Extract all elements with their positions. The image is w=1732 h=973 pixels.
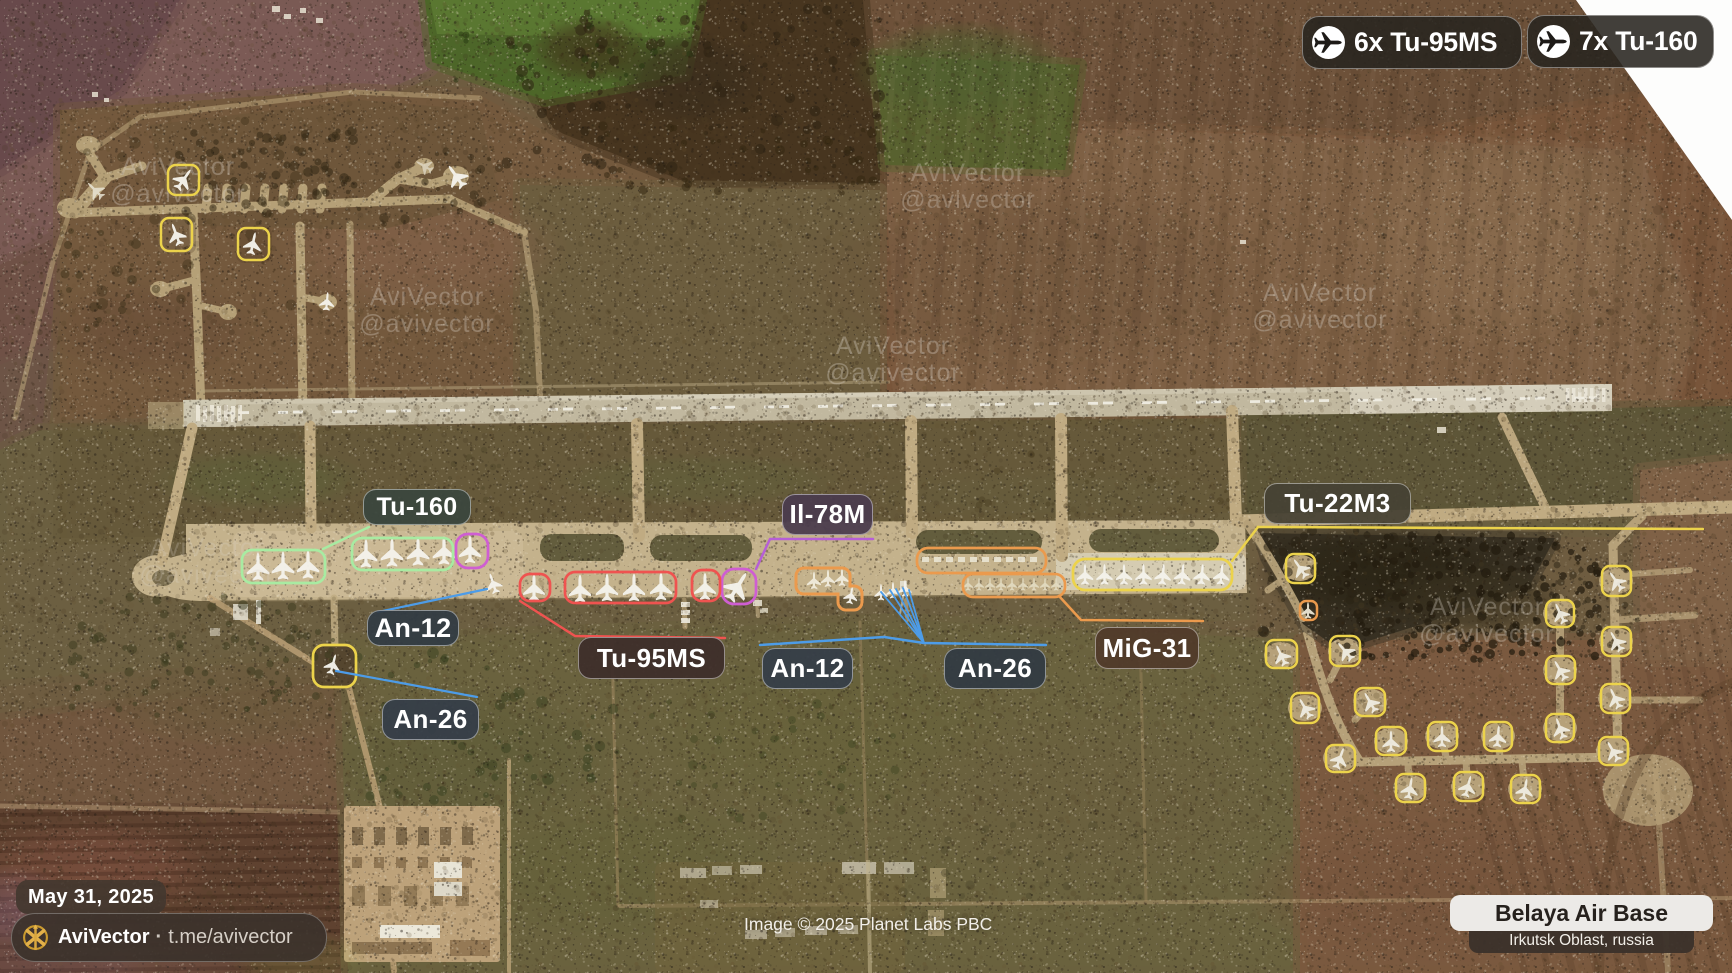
svg-text:@avivector: @avivector xyxy=(139,561,274,589)
svg-text:AviVector: AviVector xyxy=(1263,279,1377,307)
svg-text:AviVector: AviVector xyxy=(836,332,950,360)
svg-text:AviVector: AviVector xyxy=(370,283,484,311)
svg-text:@avivector: @avivector xyxy=(359,310,494,338)
svg-text:@avivector: @avivector xyxy=(1419,620,1554,648)
svg-text:@avivector: @avivector xyxy=(900,186,1035,214)
svg-text:AviVector: AviVector xyxy=(121,153,235,181)
svg-text:@avivector: @avivector xyxy=(825,359,960,387)
svg-text:@avivector: @avivector xyxy=(1252,306,1387,334)
svg-text:AviVector: AviVector xyxy=(150,534,264,562)
svg-text:AviVector: AviVector xyxy=(1430,593,1544,621)
svg-text:AviVector: AviVector xyxy=(911,159,1025,187)
